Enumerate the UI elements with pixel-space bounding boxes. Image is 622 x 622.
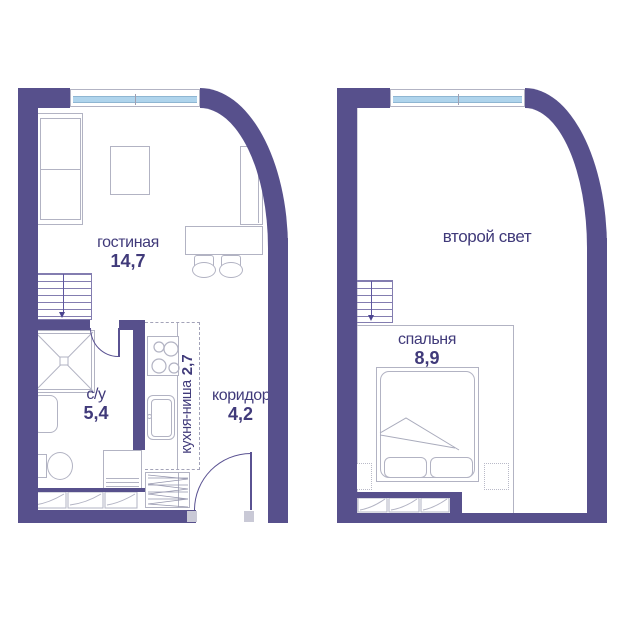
washing-machine-door-lines: [106, 478, 139, 487]
room-name: коридор: [212, 387, 269, 404]
stool-base: [219, 262, 243, 278]
plan-level-2: второй свет спальня 8,9: [337, 88, 607, 523]
window: [390, 89, 525, 107]
sofa: [32, 113, 83, 225]
bed: [376, 367, 479, 482]
wall-corner-rounded: [200, 88, 288, 248]
bathroom-door-leaf: [118, 328, 120, 357]
sliding-wardrobe: [358, 498, 449, 512]
door-threshold: [244, 511, 254, 522]
wall-bottom: [18, 510, 196, 523]
stairs-down-arrow-icon: [368, 315, 374, 321]
bar-stool: [192, 255, 217, 278]
wall-corner-rounded: [525, 88, 607, 248]
bathroom-label: с/у 5,4: [66, 386, 126, 424]
room-name: гостиная: [68, 234, 188, 251]
wall-bottom: [337, 513, 607, 523]
wall-bathroom-top: [32, 320, 90, 330]
entrance-door-arc: [194, 453, 251, 510]
wall-wardrobe-niche-side: [450, 492, 462, 513]
window-tick: [135, 94, 136, 105]
window-tick: [458, 94, 459, 105]
room-area: 14,7: [68, 252, 188, 271]
bedroom-label: спальня 8,9: [377, 331, 477, 369]
room-area: 5,4: [66, 404, 126, 423]
shower-inner: [36, 333, 92, 390]
stairs-axis: [63, 274, 64, 314]
toilet-bowl: [47, 452, 73, 480]
room-area: 8,9: [377, 349, 477, 368]
wall-left: [337, 88, 357, 523]
bedroom-boundary-top: [349, 325, 513, 326]
pillow: [384, 457, 427, 478]
wall-right: [268, 238, 288, 523]
stairs-down-arrow-icon: [59, 312, 65, 318]
wall-top: [18, 88, 70, 108]
window: [70, 89, 200, 107]
kitchen-label: кухня-ниша 2,7: [176, 328, 200, 480]
stool-base: [192, 262, 216, 278]
stairs-axis: [371, 281, 372, 317]
door-threshold: [187, 511, 197, 522]
sliding-wardrobe: [33, 492, 137, 508]
floor-plan-canvas: гостиная 14,7 с/у 5,4 кухня-ниша 2,7 кор…: [0, 0, 622, 622]
wall-bathroom-bottom: [32, 488, 145, 492]
room-name: спальня: [377, 331, 477, 348]
room-name: кухня-ниша: [180, 380, 196, 454]
wall-bathroom-kitchen-divider: [133, 320, 145, 450]
wall-wardrobe-niche-top: [351, 492, 458, 498]
room-area: 4,2: [212, 405, 269, 424]
wall-top: [337, 88, 390, 108]
living-room-label: гостиная 14,7: [68, 234, 188, 272]
room-name: с/у: [66, 386, 126, 403]
corridor-label: коридор 4,2: [212, 387, 269, 425]
washing-machine: [103, 450, 142, 490]
plan-level-1: гостиная 14,7 с/у 5,4 кухня-ниша 2,7 кор…: [18, 88, 288, 523]
sofa-cushion-divider: [40, 169, 81, 170]
bedroom-boundary-right: [513, 325, 514, 513]
wall-left: [18, 88, 38, 523]
coffee-table: [110, 146, 150, 195]
nightstand: [484, 463, 509, 490]
bar-stool: [219, 255, 244, 278]
wall-right: [587, 238, 607, 523]
pillow: [430, 457, 473, 478]
shower: [33, 330, 95, 393]
room-area: 2,7: [180, 354, 196, 375]
stairs-down: [33, 273, 92, 320]
